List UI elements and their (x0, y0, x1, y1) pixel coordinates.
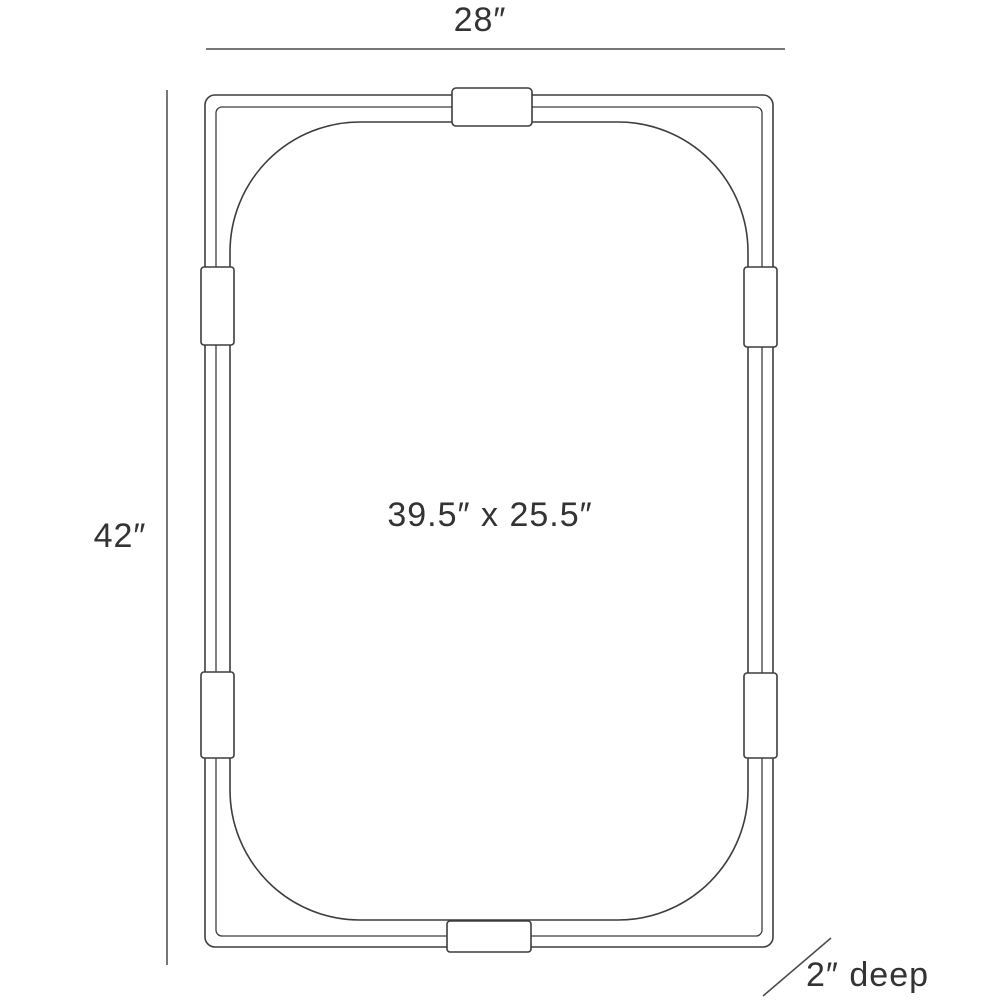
top-mounting-tab (452, 88, 532, 126)
diagram-canvas: 28″ 42″ 39.5″ x 25.5″ 2″ deep (0, 0, 1000, 1000)
right-upper-mounting-tab (744, 267, 777, 347)
mirror-dimension-diagram: 28″ 42″ 39.5″ x 25.5″ 2″ deep (0, 0, 1000, 1000)
bottom-mounting-tab (447, 921, 531, 952)
height-dimension-label: 42″ (94, 517, 147, 555)
left-lower-mounting-tab (201, 672, 234, 758)
inner-dimensions-label: 39.5″ x 25.5″ (387, 496, 592, 534)
depth-label: 2″ deep (806, 956, 929, 994)
right-lower-mounting-tab (744, 673, 777, 758)
width-dimension-label: 28″ (454, 1, 507, 39)
left-upper-mounting-tab (201, 267, 234, 345)
